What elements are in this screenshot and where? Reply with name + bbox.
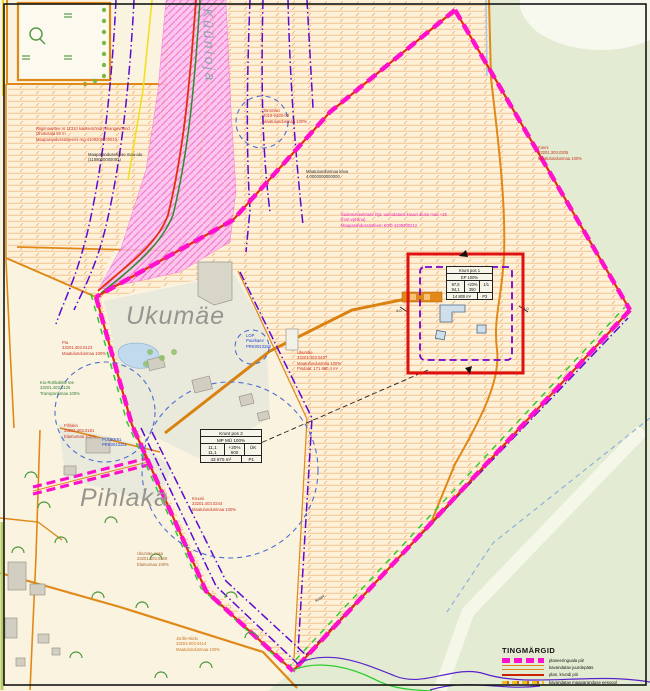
legend-item-plan-krundi-piir: plan. krundi piir	[502, 672, 648, 677]
legend-item-label: kavandatav juurdepääs	[549, 665, 593, 670]
plan-map: KüüniojaUkumäePihlakaRiigimaantee nr 113…	[0, 0, 650, 691]
legend-item-kavandatav-juurdepaas: kavandatav juurdepääs	[502, 665, 648, 670]
legend-title: TINGMÄRGID	[502, 646, 648, 655]
yellow-dash-swatch	[502, 681, 544, 684]
red-line-swatch	[502, 674, 544, 676]
magenta-dash-swatch	[502, 658, 544, 663]
legend-item-planeeringuala-piir: planeeringuala piir	[502, 658, 648, 663]
legend: TINGMÄRGID planeeringuala piirkavandatav…	[502, 646, 648, 687]
legend-rows: planeeringuala piirkavandatav juurdepääs…	[502, 658, 648, 685]
legend-item-label: plan. krundi piir	[549, 672, 578, 677]
legend-item-label: planeeringuala piir	[549, 658, 584, 663]
legend-item-label: kavandatav maaparanduse eesvool	[549, 680, 617, 685]
orange-double-swatch	[502, 665, 544, 670]
legend-item-kavandatav-eesvool: kavandatav maaparanduse eesvool	[502, 680, 648, 685]
map-canvas	[0, 0, 650, 691]
quarry-block	[18, 3, 110, 86]
